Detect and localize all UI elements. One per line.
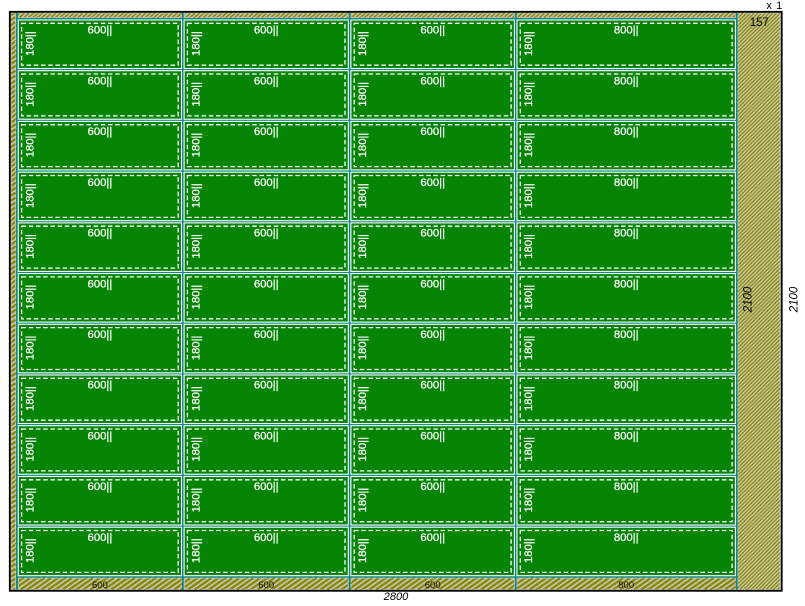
svg-text:600||: 600|| <box>420 126 445 138</box>
svg-text:180||: 180|| <box>357 336 369 361</box>
svg-text:2100: 2100 <box>742 286 754 313</box>
svg-text:180||: 180|| <box>190 82 202 107</box>
svg-text:800||: 800|| <box>614 278 639 290</box>
svg-text:600||: 600|| <box>88 532 113 544</box>
svg-text:180||: 180|| <box>25 183 37 208</box>
svg-text:600||: 600|| <box>88 25 113 37</box>
svg-text:180||: 180|| <box>523 386 535 411</box>
svg-text:180||: 180|| <box>25 386 37 411</box>
svg-text:180||: 180|| <box>523 31 535 56</box>
svg-text:180||: 180|| <box>25 437 37 462</box>
svg-text:600||: 600|| <box>420 380 445 392</box>
svg-text:600||: 600|| <box>420 532 445 544</box>
svg-text:600||: 600|| <box>88 278 113 290</box>
svg-text:600||: 600|| <box>88 481 113 493</box>
svg-text:180||: 180|| <box>357 488 369 513</box>
svg-text:800||: 800|| <box>614 430 639 442</box>
svg-text:600||: 600|| <box>420 25 445 37</box>
svg-text:600||: 600|| <box>254 430 279 442</box>
svg-text:600||: 600|| <box>254 481 279 493</box>
svg-text:800||: 800|| <box>614 380 639 392</box>
svg-text:180||: 180|| <box>190 285 202 310</box>
svg-text:600||: 600|| <box>254 228 279 240</box>
svg-text:600||: 600|| <box>254 532 279 544</box>
svg-text:600||: 600|| <box>254 25 279 37</box>
svg-text:180||: 180|| <box>523 285 535 310</box>
svg-text:600||: 600|| <box>254 329 279 341</box>
svg-text:180||: 180|| <box>190 133 202 158</box>
svg-text:800||: 800|| <box>614 75 639 87</box>
svg-text:180||: 180|| <box>25 488 37 513</box>
svg-text:180||: 180|| <box>25 285 37 310</box>
svg-text:180||: 180|| <box>190 234 202 259</box>
svg-text:180||: 180|| <box>25 538 37 563</box>
svg-text:180||: 180|| <box>523 437 535 462</box>
svg-text:600||: 600|| <box>88 228 113 240</box>
svg-text:180||: 180|| <box>357 386 369 411</box>
svg-text:180||: 180|| <box>523 336 535 361</box>
svg-text:180||: 180|| <box>357 285 369 310</box>
svg-text:600||: 600|| <box>420 228 445 240</box>
svg-text:180||: 180|| <box>357 234 369 259</box>
svg-text:180||: 180|| <box>190 386 202 411</box>
svg-text:180||: 180|| <box>523 234 535 259</box>
svg-text:180||: 180|| <box>523 133 535 158</box>
svg-text:600||: 600|| <box>254 126 279 138</box>
svg-text:180||: 180|| <box>357 31 369 56</box>
svg-text:600||: 600|| <box>254 380 279 392</box>
svg-text:180||: 180|| <box>25 31 37 56</box>
svg-text:180||: 180|| <box>190 437 202 462</box>
svg-text:600: 600 <box>258 580 274 591</box>
svg-text:600||: 600|| <box>88 380 113 392</box>
svg-text:180||: 180|| <box>357 183 369 208</box>
svg-text:600||: 600|| <box>420 481 445 493</box>
svg-text:800||: 800|| <box>614 329 639 341</box>
svg-text:180||: 180|| <box>25 133 37 158</box>
svg-text:180||: 180|| <box>25 234 37 259</box>
svg-text:180||: 180|| <box>523 538 535 563</box>
svg-text:180||: 180|| <box>25 82 37 107</box>
svg-text:800||: 800|| <box>614 532 639 544</box>
svg-text:180||: 180|| <box>523 183 535 208</box>
svg-text:600||: 600|| <box>88 329 113 341</box>
svg-text:x 1: x 1 <box>766 0 782 12</box>
svg-text:600||: 600|| <box>420 430 445 442</box>
svg-text:600||: 600|| <box>254 278 279 290</box>
svg-text:600||: 600|| <box>88 177 113 189</box>
svg-text:180||: 180|| <box>25 336 37 361</box>
svg-text:180||: 180|| <box>190 538 202 563</box>
svg-text:800||: 800|| <box>614 177 639 189</box>
svg-text:600||: 600|| <box>420 278 445 290</box>
svg-text:600||: 600|| <box>420 177 445 189</box>
svg-text:2100: 2100 <box>788 286 800 313</box>
svg-text:180||: 180|| <box>190 183 202 208</box>
svg-text:180||: 180|| <box>190 336 202 361</box>
svg-text:600||: 600|| <box>88 75 113 87</box>
svg-text:2800: 2800 <box>383 591 409 603</box>
svg-text:180||: 180|| <box>190 31 202 56</box>
svg-text:600||: 600|| <box>254 75 279 87</box>
svg-text:800||: 800|| <box>614 126 639 138</box>
svg-text:600||: 600|| <box>420 329 445 341</box>
svg-text:800||: 800|| <box>614 228 639 240</box>
svg-text:600||: 600|| <box>88 430 113 442</box>
svg-text:157: 157 <box>750 17 769 29</box>
svg-text:600||: 600|| <box>88 126 113 138</box>
svg-text:800||: 800|| <box>614 481 639 493</box>
svg-text:180||: 180|| <box>357 82 369 107</box>
svg-text:180||: 180|| <box>190 488 202 513</box>
svg-text:180||: 180|| <box>357 437 369 462</box>
svg-text:180||: 180|| <box>523 488 535 513</box>
svg-text:800: 800 <box>618 580 634 591</box>
svg-text:600: 600 <box>92 580 108 591</box>
svg-text:600||: 600|| <box>254 177 279 189</box>
svg-text:600: 600 <box>425 580 441 591</box>
svg-text:600||: 600|| <box>420 75 445 87</box>
svg-text:800||: 800|| <box>614 25 639 37</box>
svg-text:180||: 180|| <box>357 133 369 158</box>
svg-text:180||: 180|| <box>357 538 369 563</box>
svg-text:180||: 180|| <box>523 82 535 107</box>
